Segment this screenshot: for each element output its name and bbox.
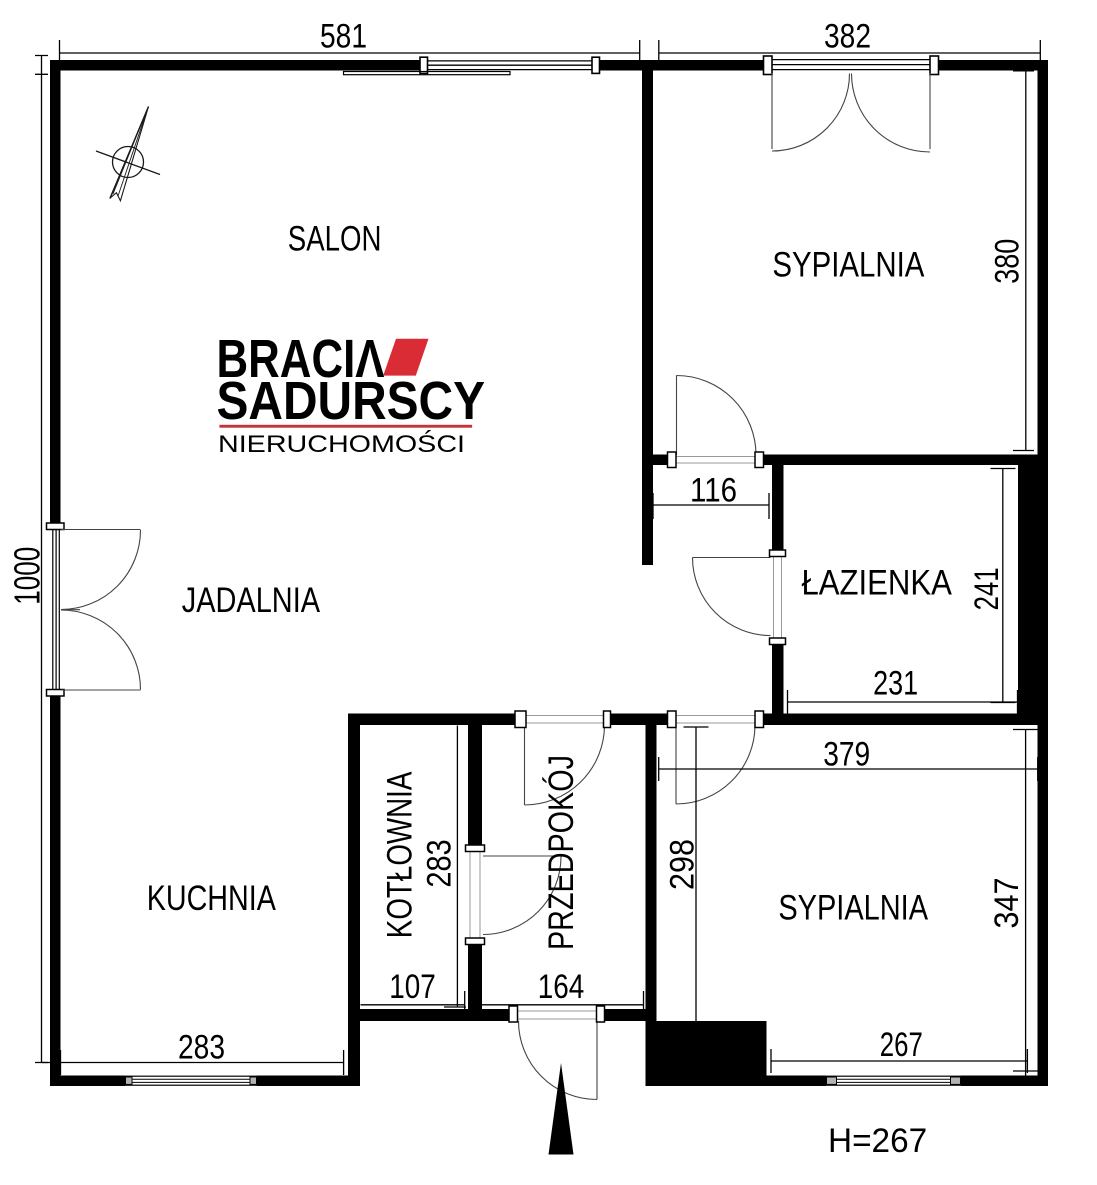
svg-text:SADURSCY: SADURSCY [217, 371, 486, 431]
svg-text:NIERUCHOMOŚCI: NIERUCHOMOŚCI [218, 430, 465, 458]
svg-text:382: 382 [824, 18, 871, 56]
svg-text:581: 581 [320, 18, 367, 56]
svg-text:267: 267 [880, 1026, 923, 1064]
svg-text:SYPIALNIA: SYPIALNIA [778, 888, 928, 927]
svg-text:298: 298 [664, 839, 702, 890]
svg-text:231: 231 [873, 665, 918, 703]
svg-text:116: 116 [690, 472, 737, 510]
svg-text:379: 379 [823, 736, 870, 774]
svg-text:164: 164 [538, 968, 585, 1006]
svg-text:PRZEDPOKÓJ: PRZEDPOKÓJ [542, 755, 581, 950]
svg-text:380: 380 [989, 239, 1027, 284]
svg-text:JADALNIA: JADALNIA [182, 581, 321, 620]
svg-text:ŁAZIENKA: ŁAZIENKA [801, 564, 952, 603]
svg-text:241: 241 [968, 567, 1006, 610]
svg-text:283: 283 [421, 839, 459, 887]
svg-text:KOTŁOWNIA: KOTŁOWNIA [381, 771, 420, 938]
svg-text:SALON: SALON [288, 220, 382, 259]
svg-text:KUCHNIA: KUCHNIA [147, 879, 277, 918]
svg-text:H=267: H=267 [828, 1122, 927, 1160]
svg-text:1000: 1000 [7, 547, 48, 605]
svg-text:283: 283 [178, 1029, 225, 1067]
svg-text:SYPIALNIA: SYPIALNIA [772, 246, 925, 285]
svg-text:347: 347 [988, 878, 1026, 929]
svg-text:107: 107 [389, 968, 436, 1006]
